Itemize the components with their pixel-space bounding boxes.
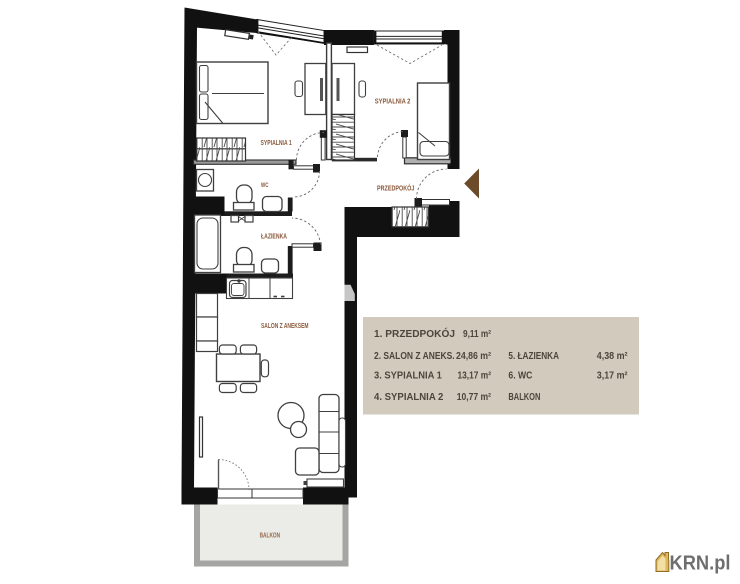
- svg-text:4,38 m²: 4,38 m²: [597, 351, 628, 362]
- svg-text:SALON Z ANEKSEM: SALON Z ANEKSEM: [261, 323, 309, 330]
- svg-text:1. PRZEDPOKÓJ: 1. PRZEDPOKÓJ: [374, 327, 455, 340]
- svg-text:KRN.pl: KRN.pl: [670, 553, 731, 575]
- svg-text:2. SALON Z ANEKS.: 2. SALON Z ANEKS.: [374, 351, 455, 362]
- svg-text:BALKON: BALKON: [508, 392, 540, 403]
- svg-text:6. WC: 6. WC: [508, 371, 532, 382]
- svg-text:WC: WC: [261, 182, 269, 189]
- svg-text:SYPIALNIA 1: SYPIALNIA 1: [261, 140, 292, 147]
- svg-text:5. ŁAZIENKA: 5. ŁAZIENKA: [508, 351, 559, 362]
- svg-text:SYPIALNIA 2: SYPIALNIA 2: [375, 99, 411, 106]
- svg-text:10,77 m²: 10,77 m²: [457, 392, 492, 403]
- svg-text:24,86 m²: 24,86 m²: [456, 351, 492, 362]
- svg-text:9,11 m²: 9,11 m²: [463, 329, 492, 340]
- svg-text:13,17 m²: 13,17 m²: [458, 371, 492, 382]
- svg-text:3. SYPIALNIA 1: 3. SYPIALNIA 1: [374, 371, 442, 382]
- svg-text:3,17 m²: 3,17 m²: [597, 371, 628, 382]
- svg-text:BALKON: BALKON: [260, 532, 281, 539]
- svg-text:4. SYPIALNIA 2: 4. SYPIALNIA 2: [374, 392, 444, 403]
- svg-text:PRZEDPOKÓJ: PRZEDPOKÓJ: [377, 183, 414, 192]
- svg-text:ŁAZIENKA: ŁAZIENKA: [261, 233, 287, 240]
